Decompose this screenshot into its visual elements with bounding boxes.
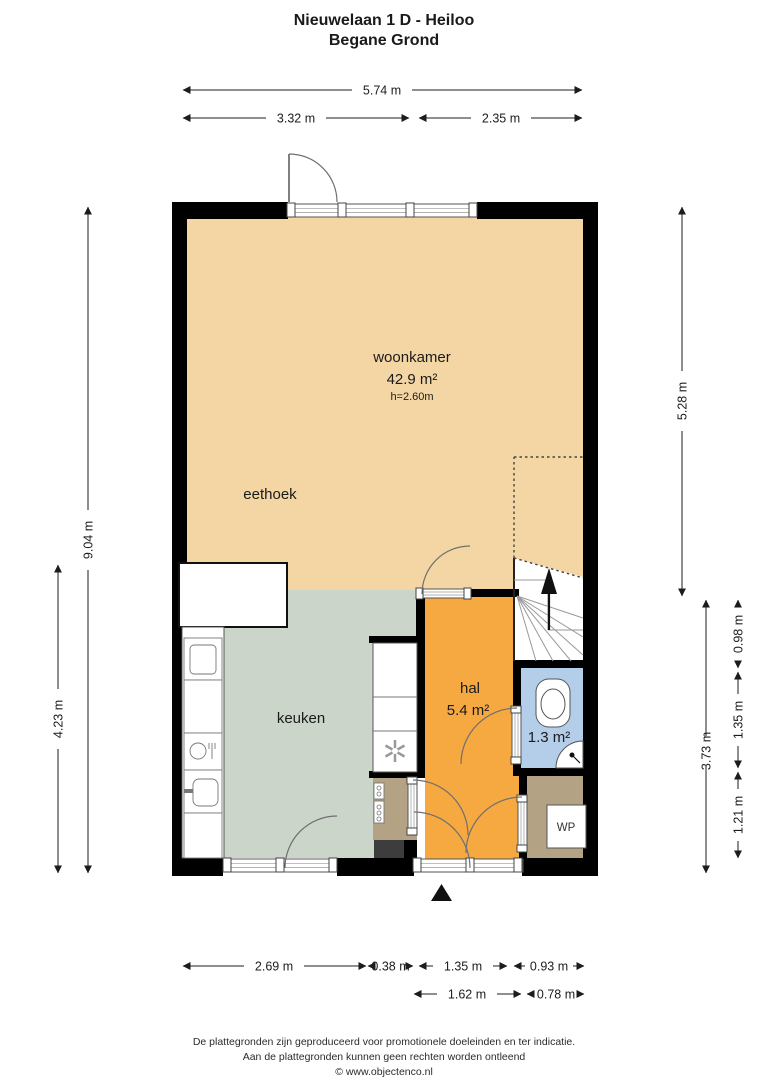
label-hal-area: 5.4 m² xyxy=(447,702,490,719)
doorway-hal-top xyxy=(416,588,471,599)
kitchen-counter-left xyxy=(182,627,224,858)
wall-stub xyxy=(404,840,417,858)
dim-bottom-4: 0.93 m xyxy=(530,960,568,974)
dimensions-right: 5.28 m 3.73 m 0.98 m 1.35 m 1.21 m xyxy=(676,207,746,873)
label-woonkamer-area: 42.9 m² xyxy=(387,371,438,388)
footer-line3: © www.objectenco.nl xyxy=(335,1066,433,1078)
dim-bottom-6: 0.78 m xyxy=(537,988,575,1002)
dimensions-left: 9.04 m 4.23 m xyxy=(52,207,96,873)
doorway-toilet xyxy=(511,706,521,764)
dim-top-right: 2.35 m xyxy=(482,112,520,126)
wall-hal-top xyxy=(468,589,519,597)
dim-bottom-1: 2.69 m xyxy=(255,960,293,974)
dim-right-seg-mid: 1.35 m xyxy=(732,701,746,739)
wall-wp-left-upper xyxy=(519,776,527,797)
window-bottom-keuken xyxy=(223,858,337,872)
label-keuken: keuken xyxy=(277,710,325,727)
doorway-meterkast xyxy=(407,777,417,835)
counter-block xyxy=(179,563,287,627)
dim-right-seg-bottom: 1.21 m xyxy=(732,796,746,834)
footer-line2: Aan de plattegronden kunnen geen rechten… xyxy=(243,1051,526,1063)
dim-bottom-3: 1.35 m xyxy=(444,960,482,974)
toilet-icon xyxy=(536,679,570,727)
dimensions-bottom: 2.69 m 0.38 m 1.35 m 0.93 m 1.62 m 0.78 … xyxy=(183,960,584,1002)
meter-icons xyxy=(374,783,384,823)
dim-left-partial: 4.23 m xyxy=(52,700,66,738)
wall-bottom-middle xyxy=(337,858,414,876)
doorway-wp xyxy=(517,795,527,852)
door-front-garden xyxy=(289,154,337,202)
wall-stairs-toilet xyxy=(513,660,598,668)
dim-top-left: 3.32 m xyxy=(277,112,315,126)
dim-top-total: 5.74 m xyxy=(363,84,401,98)
heat-pump-unit: WP xyxy=(547,805,586,848)
label-eethoek: eethoek xyxy=(243,486,297,503)
title-line2: Begane Grond xyxy=(329,32,439,49)
sink-icon xyxy=(184,770,222,813)
wall-bottom-left xyxy=(172,858,223,876)
footer-line1: De plattegronden zijn geproduceerd voor … xyxy=(193,1036,575,1048)
label-toilet-area: 1.3 m² xyxy=(528,729,571,746)
dim-left-total: 9.04 m xyxy=(82,521,96,559)
entrance-marker-icon xyxy=(431,884,452,901)
room-woonkamer xyxy=(180,206,588,590)
dim-bottom-5: 1.62 m xyxy=(448,988,486,1002)
title-line1: Nieuwelaan 1 D - Heiloo xyxy=(294,12,475,29)
label-woonkamer-height: h=2.60m xyxy=(390,391,433,403)
wall-top-right xyxy=(477,202,598,219)
footer-disclaimer: De plattegronden zijn geproduceerd voor … xyxy=(193,1036,575,1078)
faucet xyxy=(184,789,193,793)
dim-bottom-2: 0.38 m xyxy=(371,960,409,974)
label-woonkamer: woonkamer xyxy=(372,349,451,366)
wall-toilet-bottom xyxy=(513,768,598,776)
wall-toilet-left-upper xyxy=(513,668,521,708)
page-title: Nieuwelaan 1 D - Heiloo Begane Grond xyxy=(294,12,475,49)
wall-cabinet-cap xyxy=(369,636,425,643)
window-top xyxy=(287,203,477,217)
dim-right-upper: 5.28 m xyxy=(676,382,690,420)
wp-label: WP xyxy=(557,822,576,834)
dishwasher-icon xyxy=(184,733,222,770)
dimensions-top: 5.74 m 3.32 m 2.35 m xyxy=(183,84,582,126)
label-hal: hal xyxy=(460,680,480,697)
dim-right-lower: 3.73 m xyxy=(700,732,714,770)
hob-icon xyxy=(190,645,216,674)
wall-top-left xyxy=(172,202,288,219)
floor-plan: Nieuwelaan 1 D - Heiloo Begane Grond xyxy=(0,0,768,1086)
dim-right-seg-top: 0.98 m xyxy=(732,615,746,653)
kitchen-cabinet-right xyxy=(373,643,417,772)
window-bottom-hal xyxy=(413,858,523,872)
wall-bottom-right xyxy=(522,858,598,876)
